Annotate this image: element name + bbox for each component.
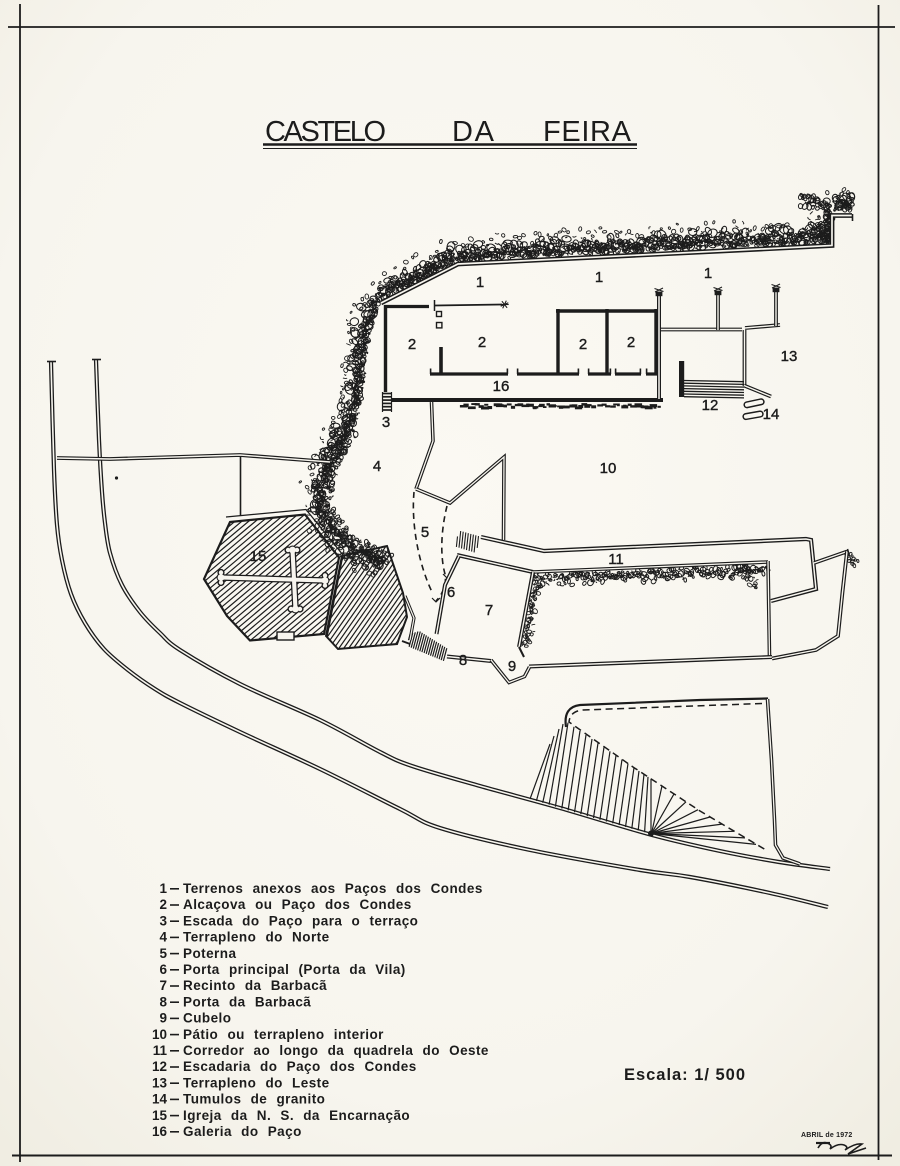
svg-text:Escada do Paço para o terraço: Escada do Paço para o terraço bbox=[183, 913, 418, 928]
svg-text:6: 6 bbox=[159, 962, 167, 977]
svg-text:2: 2 bbox=[627, 334, 635, 351]
svg-text:6: 6 bbox=[447, 584, 455, 601]
svg-text:9: 9 bbox=[159, 1011, 167, 1026]
svg-text:Escadaria do Paço dos Condes: Escadaria do Paço dos Condes bbox=[183, 1059, 417, 1074]
svg-text:Escala: 1/ 500: Escala: 1/ 500 bbox=[624, 1066, 745, 1084]
svg-text:1: 1 bbox=[159, 881, 167, 896]
svg-text:8: 8 bbox=[159, 994, 167, 1009]
svg-text:1: 1 bbox=[476, 274, 484, 291]
svg-text:1: 1 bbox=[704, 265, 712, 282]
svg-text:Terrapleno do Leste: Terrapleno do Leste bbox=[183, 1075, 330, 1090]
svg-text:Galeria do Paço: Galeria do Paço bbox=[183, 1124, 302, 1139]
svg-text:12: 12 bbox=[702, 397, 719, 414]
svg-text:14: 14 bbox=[763, 406, 780, 423]
svg-text:Igreja da N. S. da Encarnação: Igreja da N. S. da Encarnação bbox=[183, 1108, 410, 1123]
svg-text:Corredor ao longo da quadrela: Corredor ao longo da quadrela do Oeste bbox=[183, 1043, 489, 1058]
svg-text:4: 4 bbox=[373, 458, 381, 475]
svg-text:10: 10 bbox=[152, 1027, 167, 1042]
svg-text:12: 12 bbox=[152, 1059, 167, 1074]
svg-text:5: 5 bbox=[421, 524, 429, 541]
svg-text:ABRIL de 1972: ABRIL de 1972 bbox=[801, 1132, 853, 1139]
svg-text:15: 15 bbox=[250, 548, 267, 565]
svg-text:2: 2 bbox=[408, 336, 416, 353]
svg-text:Terrenos anexos aos Paços dos: Terrenos anexos aos Paços dos Condes bbox=[183, 881, 483, 896]
svg-text:13: 13 bbox=[781, 348, 798, 365]
svg-text:Terrapleno do Norte: Terrapleno do Norte bbox=[183, 930, 330, 945]
svg-text:4: 4 bbox=[159, 930, 167, 945]
svg-text:8: 8 bbox=[459, 652, 467, 669]
svg-text:10: 10 bbox=[600, 460, 617, 477]
svg-text:9: 9 bbox=[508, 658, 516, 675]
svg-text:16: 16 bbox=[493, 378, 510, 395]
svg-text:Recinto da Barbacã: Recinto da Barbacã bbox=[183, 978, 327, 993]
svg-text:7: 7 bbox=[485, 602, 493, 619]
svg-text:2: 2 bbox=[159, 897, 167, 912]
svg-text:Pátio ou terrapleno interior: Pátio ou terrapleno interior bbox=[183, 1027, 384, 1042]
svg-text:16: 16 bbox=[152, 1124, 168, 1139]
svg-text:Poterna: Poterna bbox=[183, 946, 236, 961]
svg-text:Cubelo: Cubelo bbox=[183, 1011, 231, 1026]
svg-text:3: 3 bbox=[382, 414, 390, 431]
svg-text:15: 15 bbox=[152, 1108, 168, 1123]
svg-text:2: 2 bbox=[478, 334, 486, 351]
svg-text:13: 13 bbox=[152, 1075, 168, 1090]
svg-text:14: 14 bbox=[152, 1092, 168, 1107]
svg-text:Porta principal (Porta da Vila: Porta principal (Porta da Vila) bbox=[183, 962, 406, 977]
svg-text:7: 7 bbox=[159, 978, 167, 993]
svg-text:11: 11 bbox=[153, 1043, 168, 1058]
svg-text:Tumulos de granito: Tumulos de granito bbox=[183, 1092, 325, 1107]
svg-text:2: 2 bbox=[579, 336, 587, 353]
svg-text:5: 5 bbox=[159, 946, 167, 961]
svg-text:CASTELO: CASTELO bbox=[265, 116, 386, 148]
svg-text:1: 1 bbox=[595, 269, 603, 286]
svg-text:3: 3 bbox=[159, 913, 167, 928]
svg-text:11: 11 bbox=[608, 551, 624, 568]
svg-text:Alcaçova ou Paço dos Condes: Alcaçova ou Paço dos Condes bbox=[183, 897, 412, 912]
svg-text:Porta da Barbacã: Porta da Barbacã bbox=[183, 994, 311, 1009]
svg-text:FEIRA: FEIRA bbox=[543, 116, 632, 148]
